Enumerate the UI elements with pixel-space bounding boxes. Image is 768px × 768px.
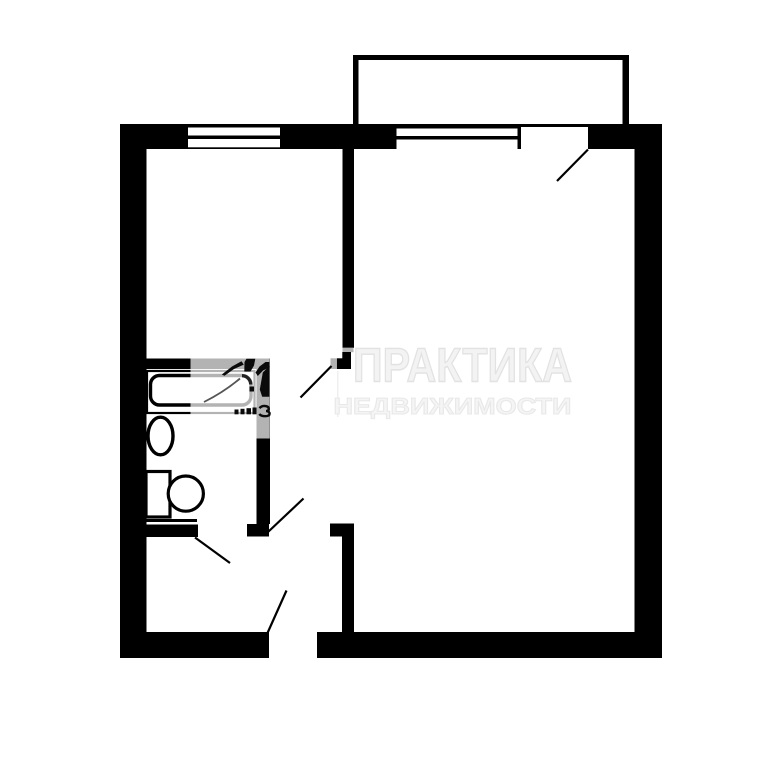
svg-text:ПРАКТИКА: ПРАКТИКА — [353, 340, 572, 393]
svg-text:НЕДВИЖИМОСТИ: НЕДВИЖИМОСТИ — [334, 393, 572, 419]
